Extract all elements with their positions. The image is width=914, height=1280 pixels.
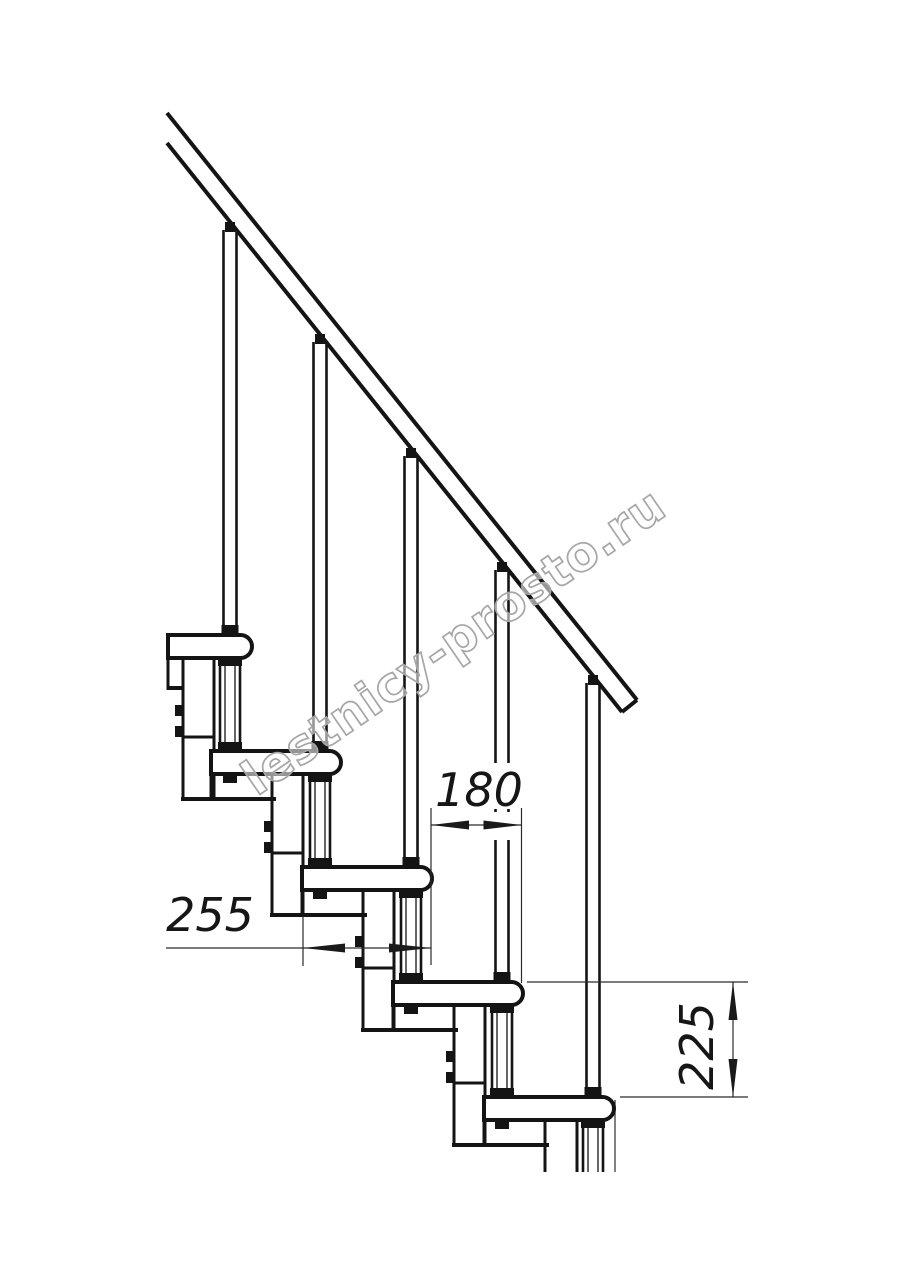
dimension-depth-255: 255 xyxy=(166,888,431,966)
arrowhead-left xyxy=(431,821,469,830)
baluster-base xyxy=(585,1087,602,1097)
tread-1 xyxy=(168,635,252,658)
arrowhead-left xyxy=(303,944,345,953)
drawing-canvas: 180 255 225 lestnicy-prosto.ru xyxy=(0,0,914,1280)
console-module-5 xyxy=(545,1116,577,1172)
clamp-bracket xyxy=(446,1051,455,1062)
support-post-3 xyxy=(399,890,423,982)
dimension-label-run: 180 xyxy=(435,763,523,817)
clamp-bracket xyxy=(264,842,273,853)
rail-connector xyxy=(497,562,507,572)
rail-connector xyxy=(588,675,598,685)
clamp-bracket xyxy=(355,936,364,947)
baluster-2 xyxy=(312,342,329,751)
watermark: lestnicy-prosto.ru xyxy=(232,477,676,807)
baluster-1 xyxy=(222,230,239,635)
rail-connector xyxy=(406,448,416,458)
baluster-base xyxy=(494,972,511,982)
dimension-rise-225: 225 xyxy=(527,982,748,1097)
tread-5 xyxy=(484,1097,614,1120)
clamp-bracket xyxy=(264,821,273,832)
baluster-base xyxy=(403,857,420,867)
bolt-nut xyxy=(313,891,327,899)
arrowhead-up xyxy=(729,982,738,1020)
bolt-nut xyxy=(495,1121,509,1129)
clamp-bracket xyxy=(175,705,184,716)
clamp-bracket xyxy=(446,1072,455,1083)
staircase-drawing: 180 255 225 lestnicy-prosto.ru xyxy=(0,0,914,1280)
support-post-4 xyxy=(490,1005,514,1097)
clamp-bracket xyxy=(175,726,184,737)
baluster-5 xyxy=(585,683,602,1097)
clamp-bracket xyxy=(355,957,364,968)
dimension-run-180: 180 xyxy=(431,763,524,983)
tread-4 xyxy=(393,982,523,1005)
dimension-label-rise: 225 xyxy=(670,1002,724,1090)
rail-connector xyxy=(225,222,235,232)
arrowhead-right xyxy=(389,944,431,953)
baluster-rail-connectors xyxy=(225,222,598,685)
bolt-nut xyxy=(404,1006,418,1014)
tread-3 xyxy=(302,867,432,890)
baluster-base xyxy=(222,625,239,635)
dimension-label-depth: 255 xyxy=(166,888,254,942)
support-post-5 xyxy=(581,1120,605,1172)
arrowhead-down xyxy=(729,1059,738,1097)
support-post-2 xyxy=(308,774,332,867)
bolt-nut xyxy=(223,775,237,783)
rail-connector xyxy=(315,334,325,344)
support-post-1 xyxy=(218,658,242,751)
